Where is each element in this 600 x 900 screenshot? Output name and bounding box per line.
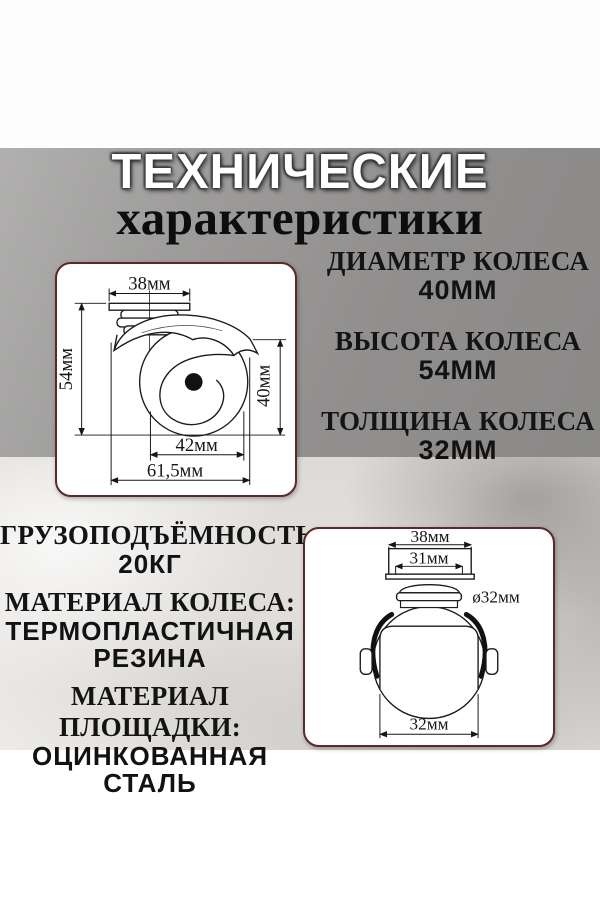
dim-left-label: 54мм [57, 348, 77, 390]
caster-side-view-drawing: 38мм 54мм 40мм 42мм 61,5мм [57, 264, 295, 495]
top-white-band [0, 0, 600, 148]
spec-plate-material: МАТЕРИАЛ ПЛОЩАДКИ: ОЦИНКОВАННАЯ СТАЛЬ [0, 681, 300, 797]
dim-right-label: 40мм [253, 365, 274, 407]
spec-value: ОЦИНКОВАННАЯ СТАЛЬ [0, 743, 300, 797]
axle-cap-left [360, 649, 372, 675]
caster-spec-infographic: ТЕХНИЧЕСКИЕ характеристики [0, 0, 600, 900]
spec-value: 40ММ [318, 276, 598, 305]
front-view-diagram-card: 38мм 31мм ø32мм 32мм [303, 527, 555, 747]
swivel-dome [400, 585, 460, 593]
dim-bottom-label: 32мм [410, 714, 449, 733]
mounting-plate [386, 574, 474, 579]
dim-top-inner-label: 31мм [410, 548, 449, 567]
page-subtitle: характеристики [0, 193, 600, 243]
wheel-tread [380, 626, 478, 690]
caster-front-view-drawing: 38мм 31мм ø32мм 32мм [305, 529, 553, 745]
side-view-diagram-card: 38мм 54мм 40мм 42мм 61,5мм [55, 262, 297, 497]
dim-top-label: 38мм [411, 529, 450, 546]
dim-bottom-outer-label: 61,5мм [147, 460, 203, 481]
spec-height: ВЫСОТА КОЛЕСА 54ММ [318, 326, 598, 385]
axle-cap-right [486, 649, 498, 675]
spec-value: 54ММ [318, 356, 598, 385]
caster-front-geometry [360, 549, 497, 719]
spec-load-capacity: ГРУЗОПОДЪЁМНОСТЬ 20КГ [0, 520, 300, 578]
spec-value: ТЕРМОПЛАСТИЧНАЯ РЕЗИНА [0, 618, 300, 672]
material-load-specs: ГРУЗОПОДЪЁМНОСТЬ 20КГ МАТЕРИАЛ КОЛЕСА: Т… [0, 520, 300, 806]
axle-hub [185, 373, 203, 391]
caster-side-geometry [109, 291, 257, 436]
spec-label: ДИАМЕТР КОЛЕСА [318, 246, 598, 276]
spec-wheel-material: МАТЕРИАЛ КОЛЕСА: ТЕРМОПЛАСТИЧНАЯ РЕЗИНА [0, 587, 300, 672]
dim-top-label: 38мм [128, 274, 170, 295]
wheel-dimension-specs: ДИАМЕТР КОЛЕСА 40ММ ВЫСОТА КОЛЕСА 54ММ Т… [318, 246, 598, 486]
dim-swivel-label: ø32мм [472, 588, 520, 607]
spec-label: ТОЛЩИНА КОЛЕСА [318, 406, 598, 436]
dim-bottom-inner-label: 42мм [176, 435, 218, 456]
spec-label: МАТЕРИАЛ КОЛЕСА: [0, 587, 300, 618]
spec-value: 32ММ [318, 436, 598, 465]
spec-label: ГРУЗОПОДЪЁМНОСТЬ [0, 520, 300, 551]
spec-label: МАТЕРИАЛ ПЛОЩАДКИ: [0, 681, 300, 743]
spec-label: ВЫСОТА КОЛЕСА [318, 326, 598, 356]
spec-value: 20КГ [0, 551, 300, 578]
spec-diameter: ДИАМЕТР КОЛЕСА 40ММ [318, 246, 598, 305]
spec-thickness: ТОЛЩИНА КОЛЕСА 32ММ [318, 406, 598, 465]
